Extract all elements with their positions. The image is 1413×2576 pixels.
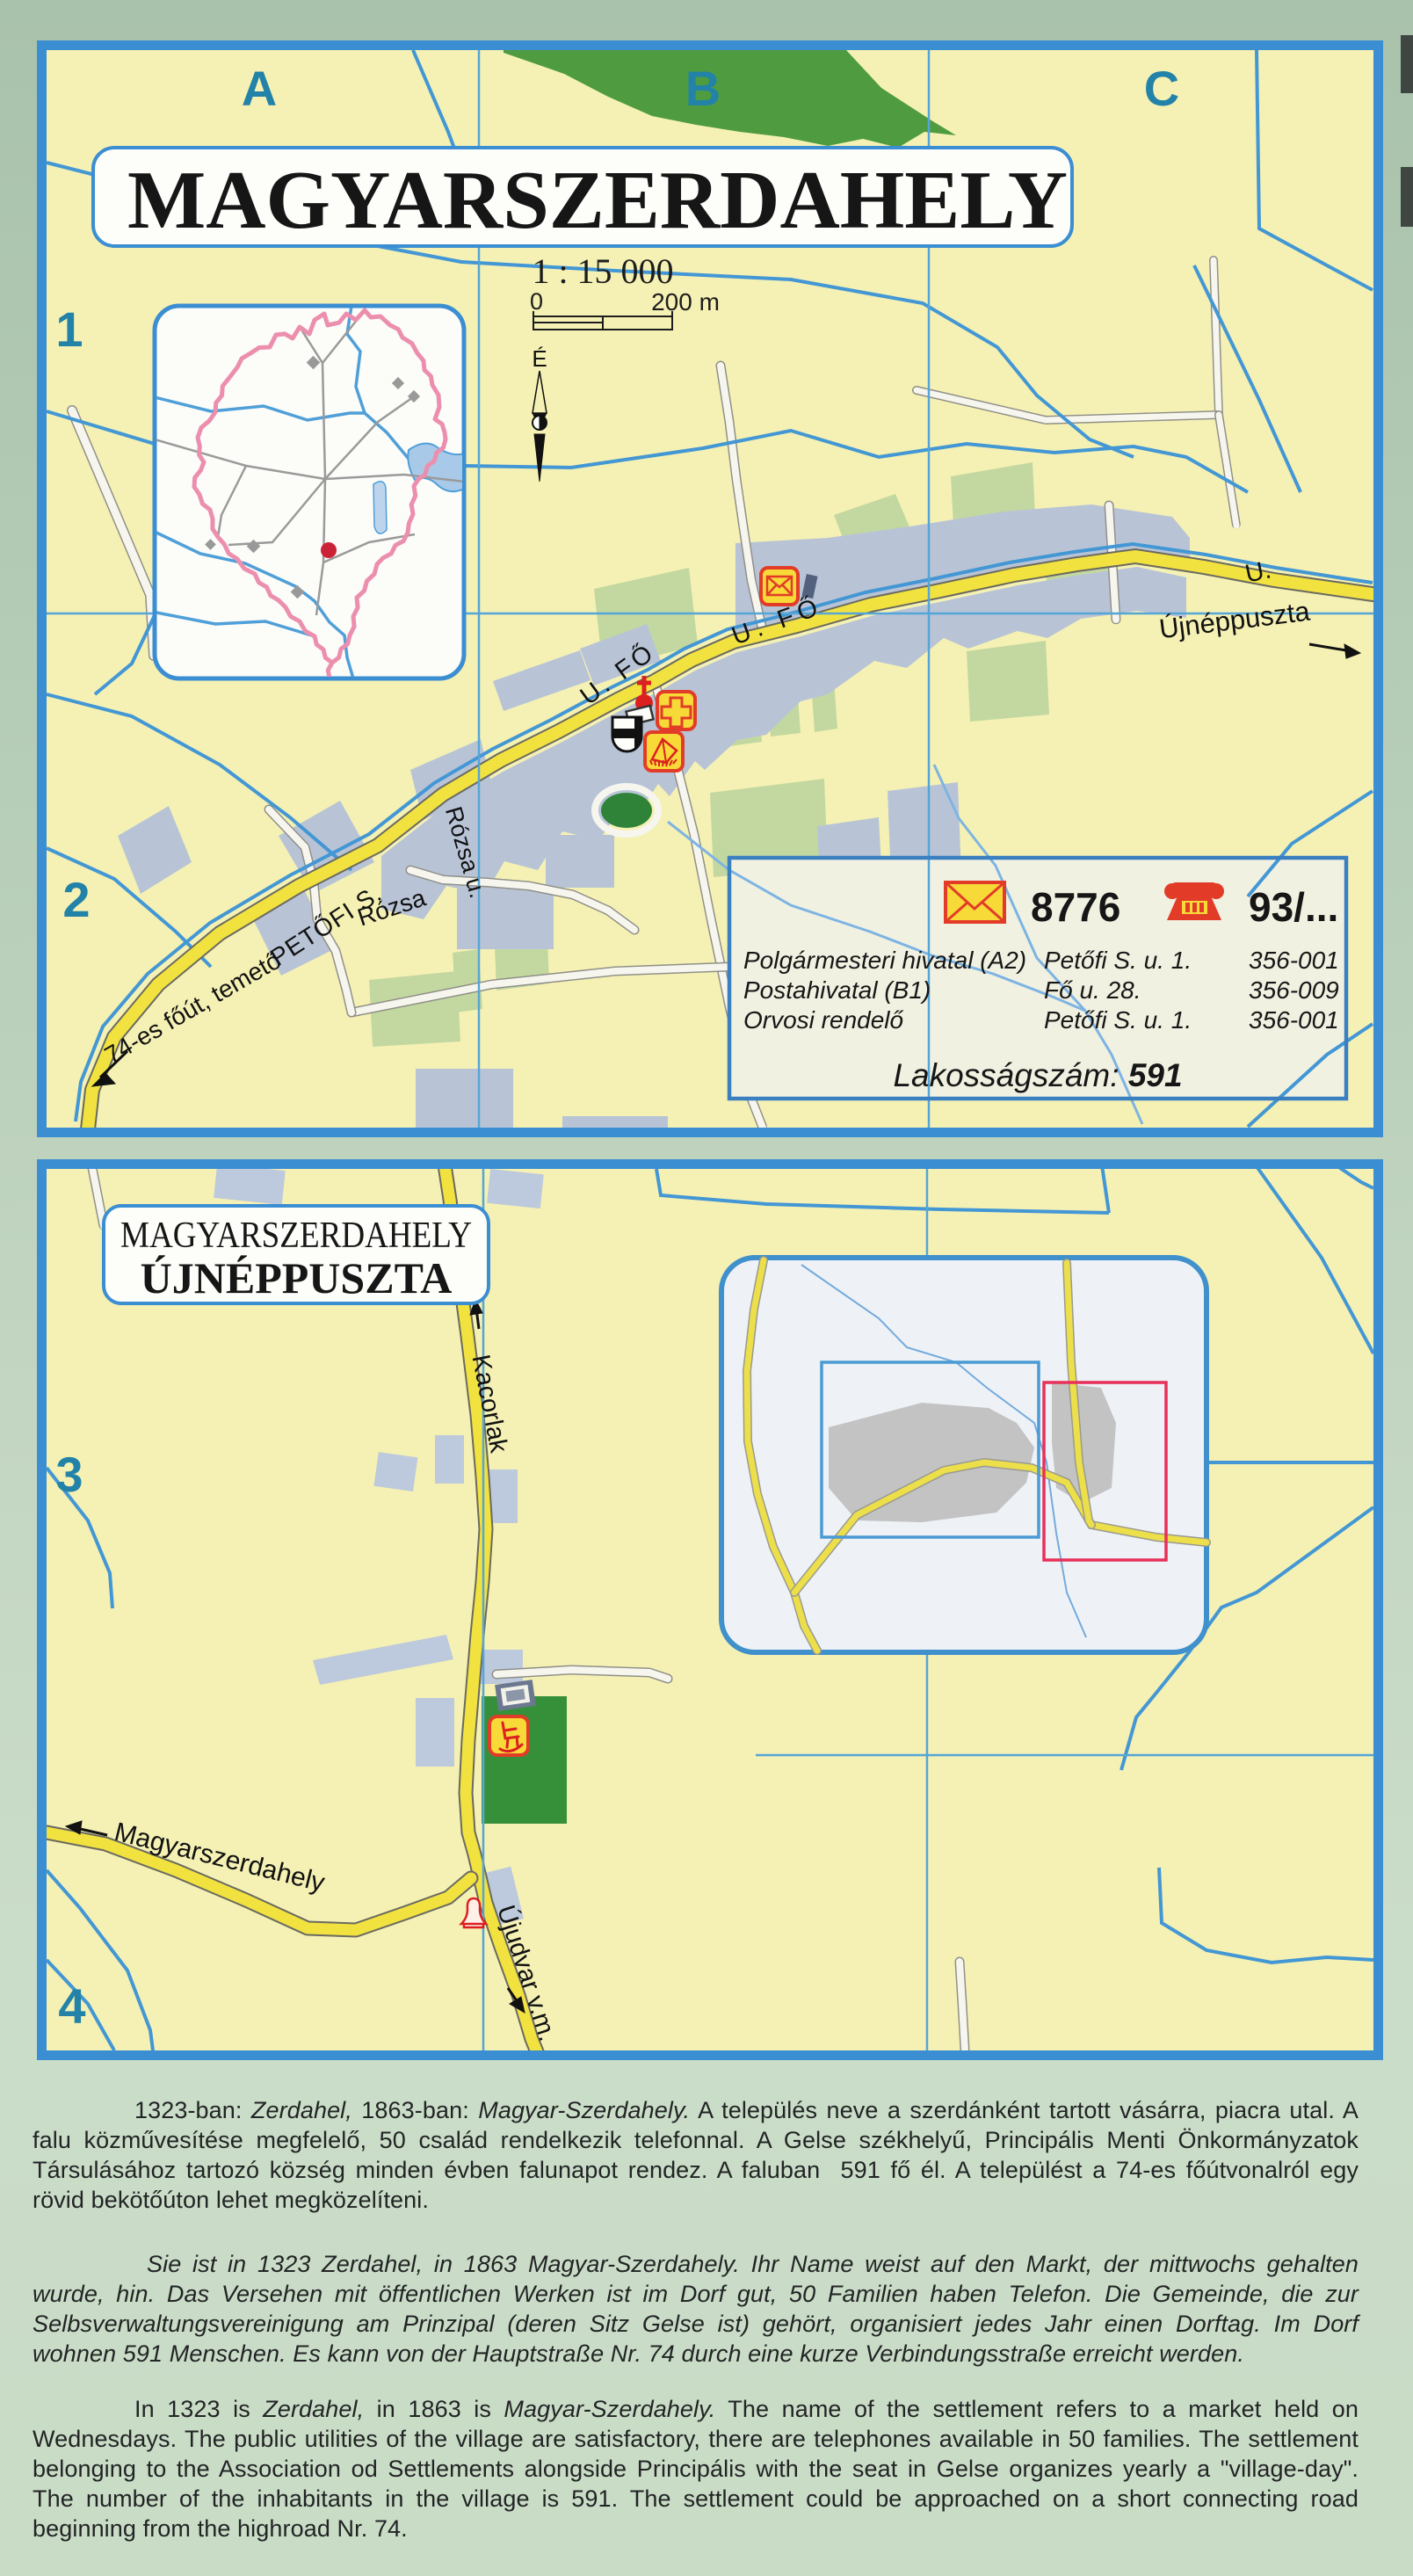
svg-text:93/...: 93/... (1249, 884, 1338, 930)
svg-text:MAGYARSZERDAHELY: MAGYARSZERDAHELY (120, 1215, 472, 1256)
svg-text:É: É (532, 345, 547, 372)
svg-text:200 m: 200 m (651, 288, 720, 316)
svg-text:2: 2 (62, 872, 90, 927)
svg-text:MAGYARSZERDAHELY: MAGYARSZERDAHELY (127, 155, 1068, 246)
svg-text:0: 0 (530, 288, 543, 315)
svg-text:8776: 8776 (1031, 884, 1120, 930)
svg-text:Postahivatal (B1): Postahivatal (B1) (743, 976, 931, 1004)
svg-text:ÚJNÉPPUSZTA: ÚJNÉPPUSZTA (141, 1253, 453, 1303)
svg-text:4: 4 (58, 1978, 85, 2034)
svg-text:Polgármesteri hivatal (A2): Polgármesteri hivatal (A2) (743, 947, 1026, 974)
svg-text:Fő u. 28.: Fő u. 28. (1044, 976, 1141, 1004)
svg-text:C: C (1144, 61, 1179, 116)
svg-text:356-001: 356-001 (1249, 1006, 1339, 1034)
svg-text:1: 1 (55, 301, 83, 357)
svg-text:Orvosi rendelő: Orvosi rendelő (743, 1006, 904, 1034)
svg-text:Petőfi S. u. 1.: Petőfi S. u. 1. (1044, 947, 1192, 974)
svg-text:3: 3 (55, 1447, 83, 1502)
svg-text:1 : 15 000: 1 : 15 000 (532, 251, 673, 291)
svg-text:Lakosságszám: 591: Lakosságszám: 591 (893, 1057, 1182, 1093)
svg-text:356-001: 356-001 (1249, 947, 1339, 974)
svg-text:A: A (242, 61, 277, 116)
svg-text:Petőfi S. u. 1.: Petőfi S. u. 1. (1044, 1006, 1192, 1034)
svg-text:B: B (685, 61, 721, 116)
svg-text:356-009: 356-009 (1249, 976, 1339, 1004)
